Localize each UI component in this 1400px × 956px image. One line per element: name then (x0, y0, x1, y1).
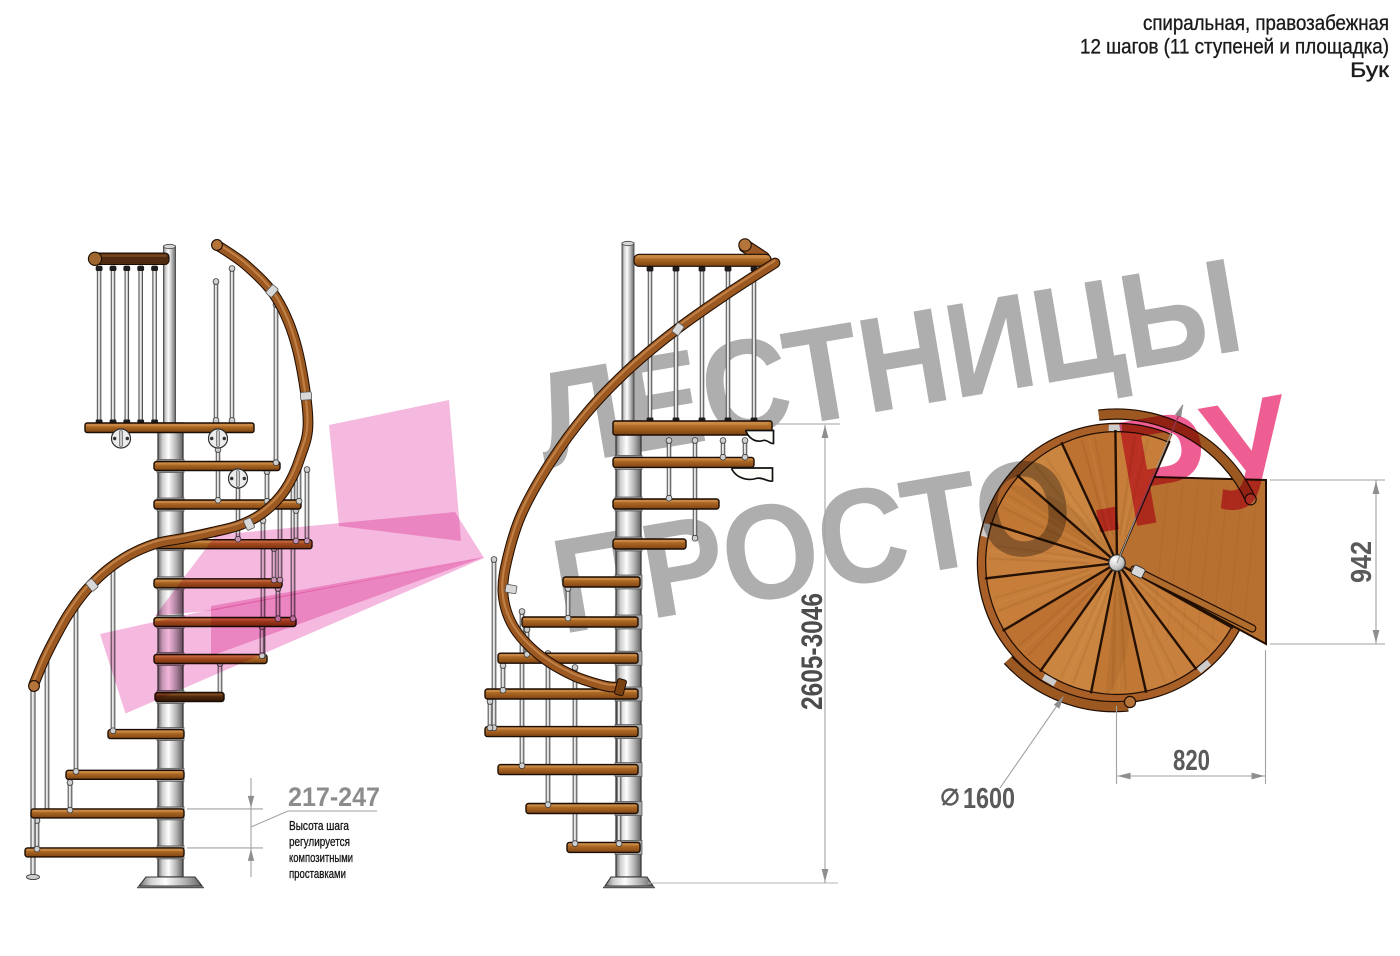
svg-text:820: 820 (1173, 745, 1210, 777)
svg-text:2605-3046: 2605-3046 (796, 593, 829, 710)
svg-text:12 шагов (11 ступеней и площад: 12 шагов (11 ступеней и площадка) (1080, 36, 1389, 59)
svg-text:спиральная, правозабежная: спиральная, правозабежная (1143, 12, 1389, 35)
svg-text:217-247: 217-247 (288, 782, 380, 812)
svg-text:1600: 1600 (963, 783, 1015, 815)
svg-text:композитными: композитными (289, 850, 353, 865)
svg-text:регулируется: регулируется (289, 834, 350, 849)
svg-text:.РУ: .РУ (1067, 362, 1306, 566)
svg-text:942: 942 (1346, 541, 1378, 583)
svg-text:Бук: Бук (1350, 59, 1390, 82)
svg-text:проставками: проставками (289, 866, 346, 881)
svg-text:Высота шага: Высота шага (289, 818, 350, 833)
